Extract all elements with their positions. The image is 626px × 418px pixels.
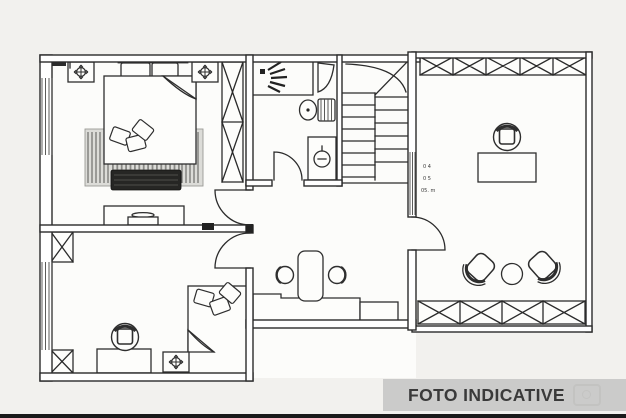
bed-pillow xyxy=(121,63,150,77)
desk xyxy=(97,349,151,373)
office-chair xyxy=(112,324,139,351)
bathroom-bottom-wall xyxy=(304,180,342,186)
stool xyxy=(277,267,294,284)
bottom-wall-left xyxy=(40,373,253,381)
bathroom-bottom-wall xyxy=(246,180,272,186)
top-outer-wall xyxy=(40,55,420,62)
bottom-edge-strip xyxy=(0,414,626,418)
wardrobe-box xyxy=(51,350,73,373)
desk xyxy=(478,153,536,182)
hall-wall-segment xyxy=(246,268,253,381)
stool xyxy=(329,267,346,284)
right-room-top-wall xyxy=(412,52,592,58)
ceiling-light xyxy=(68,62,94,82)
stairs-right-wall-lower xyxy=(408,250,416,330)
tall-wardrobe xyxy=(222,62,243,182)
area-label-line: 0 5 xyxy=(423,176,431,182)
watermark-camera-icon xyxy=(573,384,601,406)
floor-plan-drawing: 0 4 0 5 05. m xyxy=(0,0,626,418)
dresser-tv xyxy=(128,217,158,225)
bedroom1-right-wall xyxy=(246,55,253,185)
watermark-text: FOTO INDICATIVE xyxy=(408,385,565,406)
washbasin-icon xyxy=(308,137,336,180)
right-room-bottom-wall xyxy=(412,326,592,332)
right-room-floor xyxy=(414,55,589,329)
wardrobe-row-top xyxy=(420,57,586,75)
ceiling-light xyxy=(163,352,189,372)
right-outer-wall xyxy=(586,52,592,332)
area-label-line: 05. m xyxy=(421,188,436,194)
bed-pillow xyxy=(152,63,178,77)
hall-cabinet xyxy=(298,251,323,301)
round-table xyxy=(502,264,523,285)
bathroom-right-wall xyxy=(337,55,342,186)
floor-plan-screenshot: 0 4 0 5 05. m FOTO INDICATIVE xyxy=(0,0,626,418)
ceiling-light xyxy=(192,62,218,82)
hall-bottom-wall xyxy=(246,320,416,328)
door-jamb xyxy=(202,223,214,230)
wardrobe-box xyxy=(51,232,73,262)
bedrooms-divider-wall xyxy=(40,225,246,232)
watermark-band: FOTO INDICATIVE xyxy=(383,379,626,411)
wardrobe-row-bottom xyxy=(418,301,585,324)
area-label-line: 0 4 xyxy=(423,164,431,170)
office-chair xyxy=(494,124,521,151)
threshold-step xyxy=(360,302,398,322)
